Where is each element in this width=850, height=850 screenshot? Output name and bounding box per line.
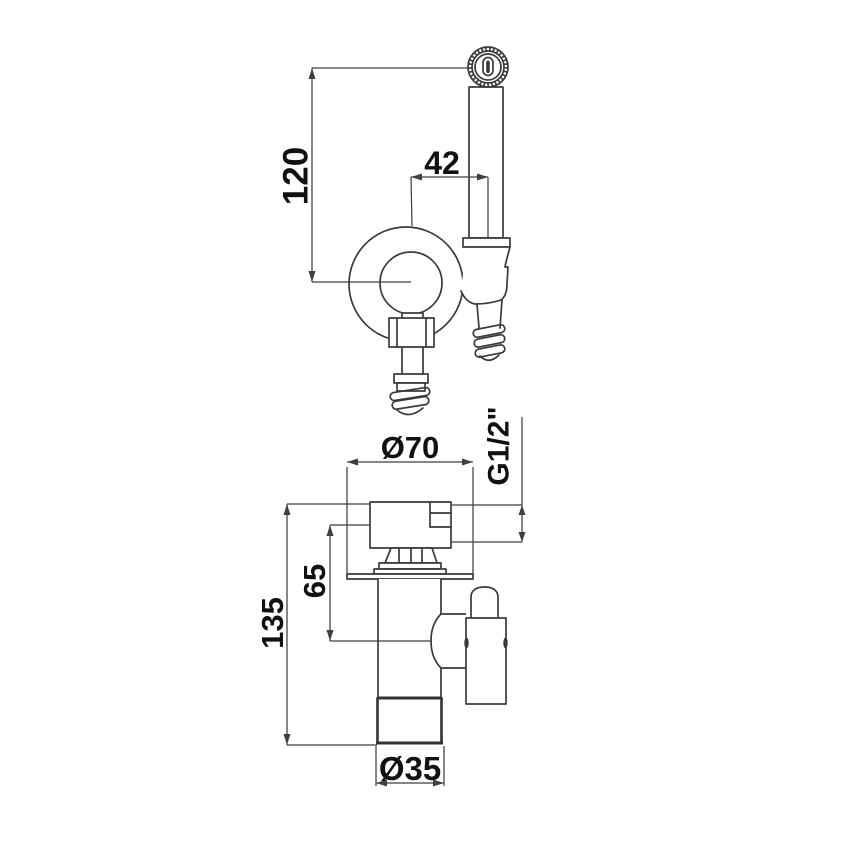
dimension-70-label: Ø70 [381,430,440,465]
technical-drawing-page: 120 42 Ø70 G1/2" 65 [0,0,850,850]
dimension-g12: G1/2" [452,406,526,542]
escutcheon-plate [347,574,473,579]
valve-body [370,502,451,548]
wall-holder-inner-circle [380,252,442,314]
valve-stem [385,548,437,563]
drawing-canvas: 120 42 Ø70 G1/2" 65 [0,0,850,850]
holder-horn-fill [460,240,510,304]
sprayer-hose-spring [473,324,506,360]
knob-dimple-left [464,638,468,649]
dimension-120-label: 120 [276,147,315,205]
holder-hose-outlet [389,313,434,391]
dimension-42-label: 42 [424,145,460,181]
sprayer-head [468,47,508,87]
valve-cylinder [376,579,443,743]
dimension-35-label: Ø35 [379,750,441,787]
dimension-35: Ø35 [376,746,444,787]
dimension-135-label: 135 [255,597,290,649]
valve-knob [466,618,506,704]
outlet-boss [431,614,466,668]
knob-dimple-right [503,638,507,649]
dimension-65-label: 65 [297,564,332,598]
handle-nut [463,238,510,247]
knob-cap [471,587,498,618]
dimension-g12-label: G1/2" [483,406,516,485]
hand-sprayer-assembly [349,47,510,415]
angle-valve-assembly [347,502,508,743]
dimension-135: 135 [255,504,377,745]
sprayer-handle [469,87,503,238]
valve-flange-upper [379,563,441,569]
